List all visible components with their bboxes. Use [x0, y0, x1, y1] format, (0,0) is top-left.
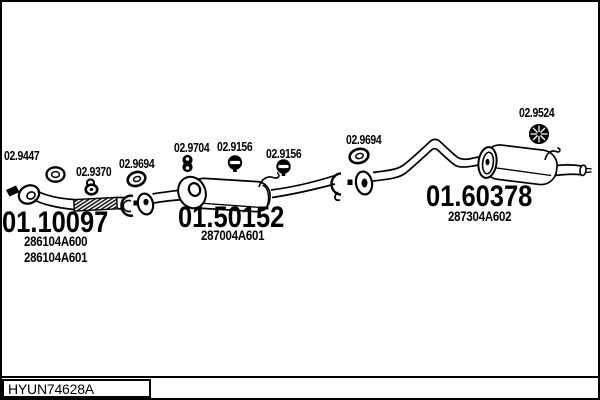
front-flange-stud: [6, 186, 20, 197]
footer-divider: [2, 376, 598, 378]
exhaust-parts-diagram: 02.9447 02.9370 02.9694 02.9704 02.9156 …: [0, 0, 600, 400]
tail-pipe-tip: [579, 165, 586, 176]
rubber-grommet-icon: [348, 147, 370, 165]
fitting-ref-label: 02.9156: [266, 147, 301, 160]
fitting-ref-label: 02.9447: [4, 149, 39, 162]
rubber-hanger-icon: [86, 179, 98, 194]
bolt-mount-icon: [228, 155, 242, 172]
fitting-ref-label: 02.9524: [519, 106, 554, 119]
rubber-grommet-icon: [126, 170, 147, 188]
fitting-ref-label: 02.9370: [76, 165, 111, 178]
oem-number: 286104A600: [24, 234, 87, 248]
fitting-ref-label: 02.9156: [217, 140, 252, 153]
drawing-code-text: HYUN74628A: [8, 381, 94, 397]
fitting-ref-label: 02.9694: [119, 157, 154, 170]
gasket-ring-icon: [47, 167, 65, 181]
double-hole-hanger-icon: [182, 155, 192, 172]
oem-number: 286104A601: [24, 250, 87, 264]
fitting-ref-label: 02.9694: [346, 133, 381, 146]
fitting-ref-label: 02.9704: [174, 141, 209, 154]
mesh-grommet-icon: [530, 125, 549, 144]
drawing-code-box: HYUN74628A: [2, 379, 151, 398]
oem-number: 287004A601: [201, 228, 264, 242]
oem-number: 287304A602: [448, 209, 511, 223]
